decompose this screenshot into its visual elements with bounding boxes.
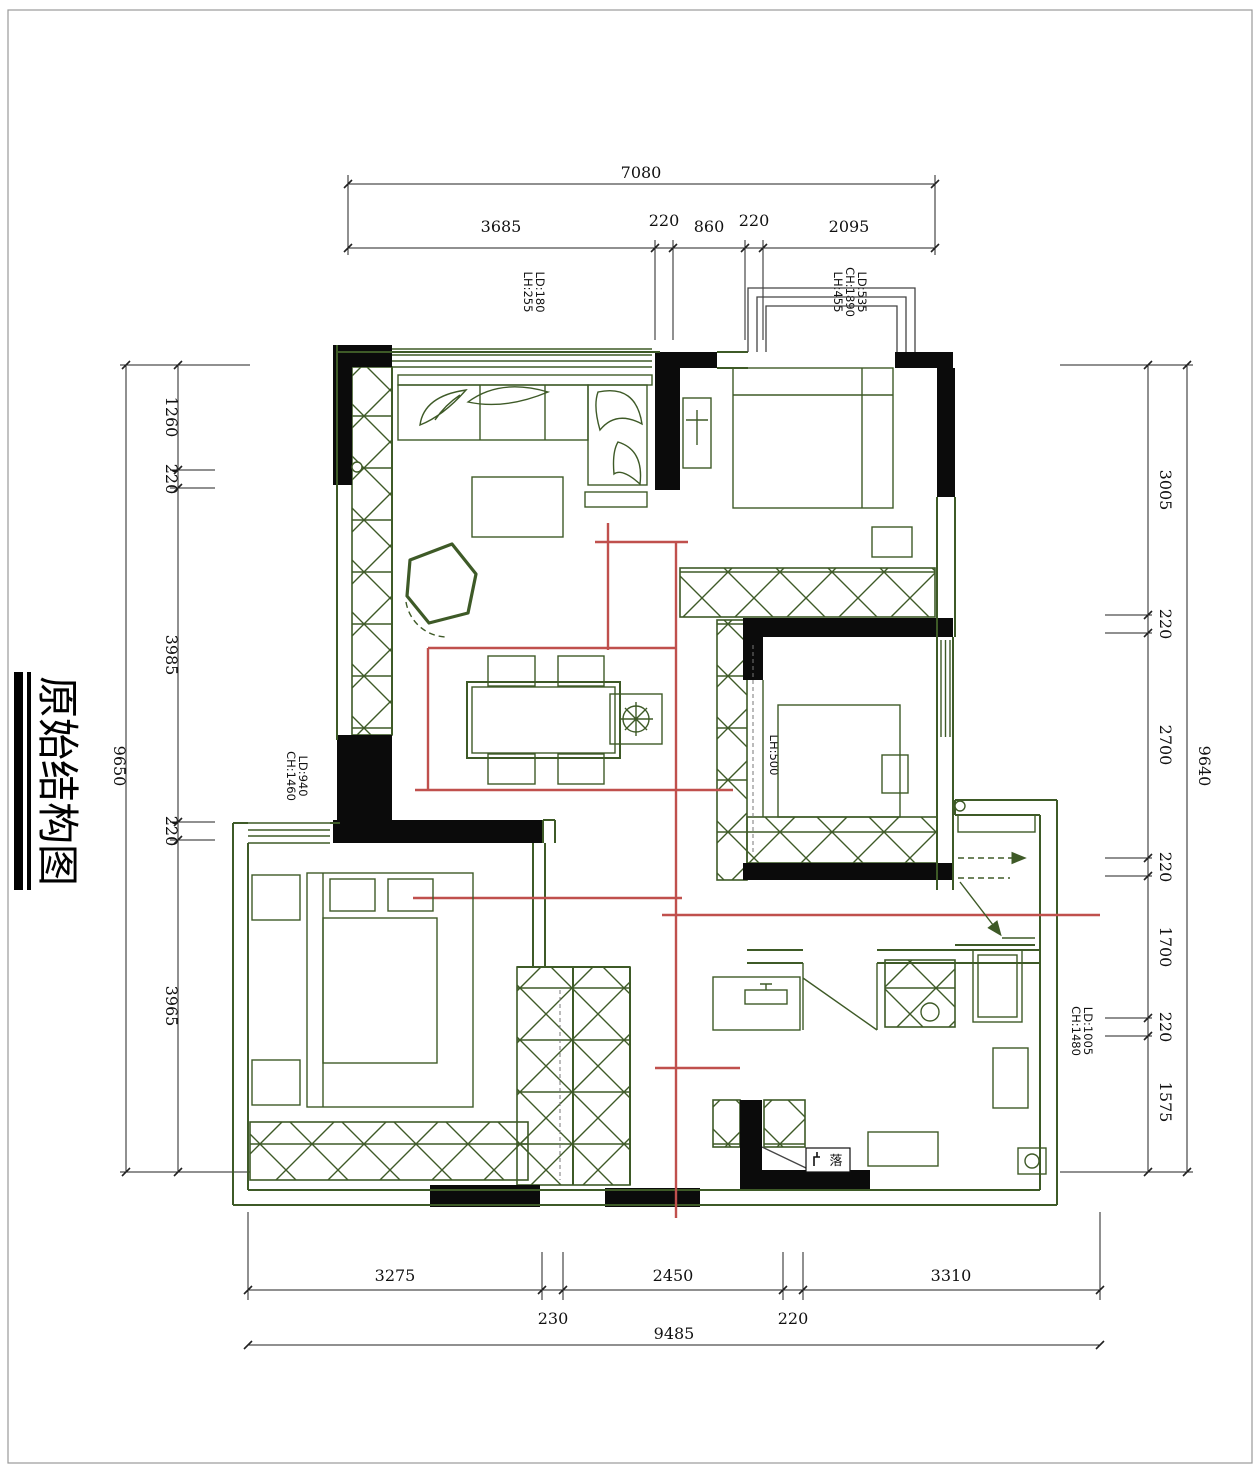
dim-right-seg-2: 220 — [1156, 609, 1175, 640]
mattress — [323, 918, 437, 1063]
bay-window — [748, 288, 915, 352]
bath-door — [803, 963, 877, 1030]
page-title: 原始结构图 — [33, 676, 82, 886]
dim-top-seg-2: 220 — [649, 211, 680, 230]
nightstand — [252, 875, 300, 920]
dim-left-seg-4: 220 — [162, 816, 181, 847]
window-bedroom2-right — [941, 640, 950, 737]
dim-left-seg-5: 3965 — [162, 986, 181, 1027]
title-rule-thin — [27, 672, 31, 890]
drain-label: 落 — [829, 1154, 842, 1169]
cabinet-kitchen — [885, 960, 955, 1027]
sofa-seat — [398, 385, 588, 440]
dim-top-overall: 7080 — [621, 163, 662, 182]
dining-table — [467, 682, 620, 758]
wardrobe-bedroom2 — [747, 817, 937, 863]
plant-3 — [596, 391, 642, 430]
cabinet — [993, 1048, 1028, 1108]
entry-swing-arrow-2 — [960, 882, 1000, 934]
bench — [868, 1132, 938, 1166]
cabinet-bath-1 — [713, 1100, 740, 1147]
title-rule-thick — [14, 672, 23, 890]
shoe-cabinet — [958, 815, 1035, 832]
dim-right-seg-6: 220 — [1156, 1012, 1175, 1043]
dim-right-seg-7: 1575 — [1156, 1082, 1175, 1123]
dim-top-seg-5: 2095 — [829, 217, 870, 236]
dim-right-overall: 9640 — [1195, 746, 1214, 787]
master-bedroom-furniture — [252, 873, 473, 1107]
dim-bottom-seg-1: 3275 — [375, 1266, 416, 1285]
label-window-left-2: CH:1460 — [284, 751, 298, 801]
sofa-side-table — [585, 492, 647, 507]
wardrobe-master — [250, 1122, 528, 1180]
dim-top-seg-4: 220 — [739, 211, 770, 230]
dining-furniture — [467, 656, 662, 784]
dimension-chain-bottom: 3275 2450 3310 230 220 9485 — [244, 1212, 1104, 1349]
sink-basin — [745, 990, 787, 1004]
entry-area — [955, 801, 1035, 938]
wardrobe-bedroom1 — [680, 568, 935, 617]
dim-left-overall: 9650 — [110, 746, 129, 787]
dim-right-seg-5: 1700 — [1156, 927, 1175, 968]
bed — [307, 873, 473, 1107]
cad-floor-plan-page: 原始结构图 7080 3685 220 860 220 2095 9650 12… — [0, 0, 1260, 1473]
dim-top-seg-1: 3685 — [481, 217, 522, 236]
label-window-top-left-2: LH:255 — [521, 272, 535, 313]
kitchen-bath-fixtures: 落 — [713, 950, 1046, 1174]
pillow — [388, 879, 433, 911]
sink-circle — [921, 1003, 939, 1021]
bedroom1-furniture — [683, 368, 912, 557]
small-table — [882, 755, 908, 793]
label-window-right-2: CH:1480 — [1069, 1006, 1083, 1056]
floor-plan-drawing: 原始结构图 7080 3685 220 860 220 2095 9650 12… — [0, 0, 1260, 1473]
dim-top-seg-3: 860 — [694, 217, 725, 236]
bed — [733, 368, 893, 508]
coffee-table — [472, 477, 563, 537]
title-block: 原始结构图 — [14, 672, 82, 890]
label-opening-mid: LH:500 — [767, 735, 781, 776]
dim-bottom-seg-3: 3310 — [931, 1266, 972, 1285]
wall-hatch-mid-divider — [717, 620, 747, 880]
dim-left-seg-3: 3985 — [162, 635, 181, 676]
dim-right-seg-1: 3005 — [1156, 470, 1175, 511]
nightstand — [252, 1060, 300, 1105]
dim-right-seg-4: 220 — [1156, 852, 1175, 883]
pillow — [330, 879, 375, 911]
page-border — [8, 10, 1252, 1463]
dim-right-seg-3: 2700 — [1156, 725, 1175, 766]
dim-bottom-sub-1: 230 — [538, 1309, 569, 1328]
wall-fixture-circle — [352, 462, 362, 472]
dim-bottom-overall: 9485 — [654, 1324, 695, 1343]
dim-bottom-seg-2: 2450 — [653, 1266, 694, 1285]
drain-label-box — [806, 1148, 850, 1172]
cabinet-bath-2 — [764, 1100, 805, 1147]
bedroom2-furniture — [763, 680, 908, 817]
dim-bottom-sub-2: 220 — [778, 1309, 809, 1328]
plant-1 — [420, 390, 466, 425]
sofa-back — [398, 375, 652, 385]
fridge — [973, 950, 1022, 1022]
small-table — [872, 527, 912, 557]
window-master-top — [248, 823, 330, 843]
sink-circle — [1025, 1154, 1039, 1168]
armchair — [407, 544, 476, 623]
plant-4 — [614, 442, 641, 484]
dimension-chain-left: 9650 1260 220 3985 220 3965 — [110, 361, 250, 1176]
dim-left-seg-2: 220 — [162, 464, 181, 495]
wall-hatch-living-left — [352, 367, 392, 735]
dim-left-seg-1: 1260 — [162, 397, 181, 438]
entry-circle — [955, 801, 965, 811]
